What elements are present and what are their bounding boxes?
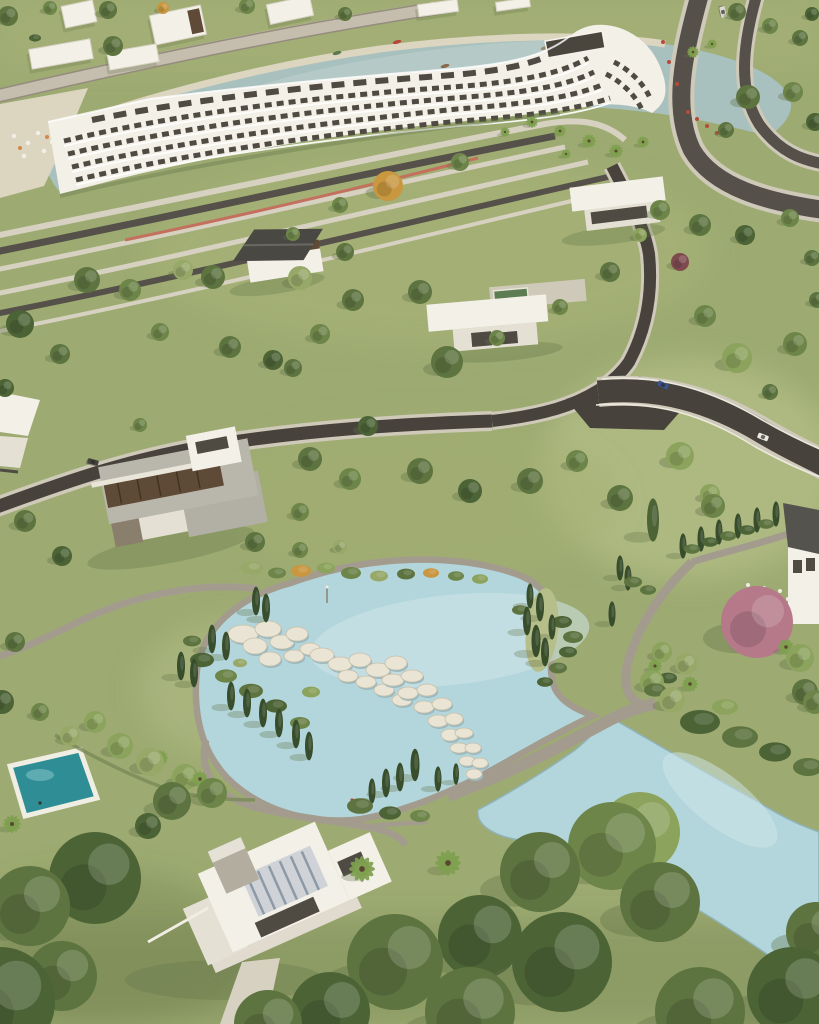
shrub [379, 806, 401, 819]
stepping-stone [414, 701, 434, 713]
beach-umbrella [22, 154, 26, 158]
flower-bed [695, 117, 699, 121]
stepping-stone [243, 638, 267, 654]
shrub [702, 537, 718, 547]
beach-umbrella [18, 146, 22, 150]
stepping-stone [472, 758, 488, 768]
shrub [680, 710, 720, 734]
flower-bed [675, 82, 679, 86]
shrub [758, 519, 774, 529]
stepping-stone [401, 670, 423, 682]
shrub [239, 684, 263, 698]
flower-bed [667, 60, 671, 64]
shrub [265, 699, 287, 712]
shrub [347, 798, 373, 814]
shrub [712, 699, 738, 715]
shrub [563, 631, 583, 643]
shrub [684, 544, 700, 554]
beach-umbrella [36, 131, 40, 135]
shrub [549, 663, 567, 674]
stepping-stone [428, 715, 448, 727]
beach-umbrella [42, 149, 46, 153]
scene-canvas [0, 0, 819, 1024]
beach-umbrella [26, 141, 30, 145]
shrub [537, 677, 553, 687]
stepping-stone [466, 769, 482, 779]
stepping-stone [356, 676, 376, 688]
shrub [739, 525, 755, 535]
shrub [722, 726, 758, 748]
stepping-stone [455, 728, 473, 738]
aerial-scene [0, 0, 819, 1024]
stepping-stone [398, 687, 418, 699]
shrub [720, 531, 736, 541]
beach-umbrella [12, 134, 16, 138]
stepping-stone [349, 653, 371, 667]
stepping-stone [445, 713, 463, 725]
shrub [624, 577, 642, 588]
shrub [472, 574, 488, 584]
shrub [559, 647, 577, 658]
stepping-stone [338, 670, 358, 682]
shrub [29, 34, 41, 41]
stepping-stone [465, 743, 481, 753]
shrub [317, 563, 335, 574]
shrub [241, 561, 263, 574]
shrub [410, 810, 430, 822]
beach-umbrella [45, 135, 49, 139]
shrub [268, 568, 286, 579]
stepping-stone [385, 656, 407, 670]
flower-bed [705, 124, 709, 128]
shrub [183, 636, 201, 647]
stepping-stone [417, 684, 437, 696]
flower-bed [686, 110, 690, 114]
beach-umbrella [50, 140, 54, 144]
shrub [397, 569, 415, 580]
shrub [448, 571, 464, 581]
pool-figure [38, 801, 41, 804]
stepping-stone [259, 652, 281, 666]
shrub [423, 568, 439, 578]
shrub [233, 659, 247, 667]
shrub [341, 567, 361, 579]
shrub [291, 565, 311, 577]
stepping-stone [432, 698, 452, 710]
shrub [759, 742, 791, 761]
stepping-stone [255, 621, 281, 637]
shrub [640, 585, 656, 595]
stepping-stone [286, 627, 308, 641]
flower-bed [661, 40, 665, 44]
shrub [302, 687, 320, 698]
shrub [370, 571, 388, 582]
stepping-stone [328, 657, 352, 671]
shrub [215, 669, 237, 682]
